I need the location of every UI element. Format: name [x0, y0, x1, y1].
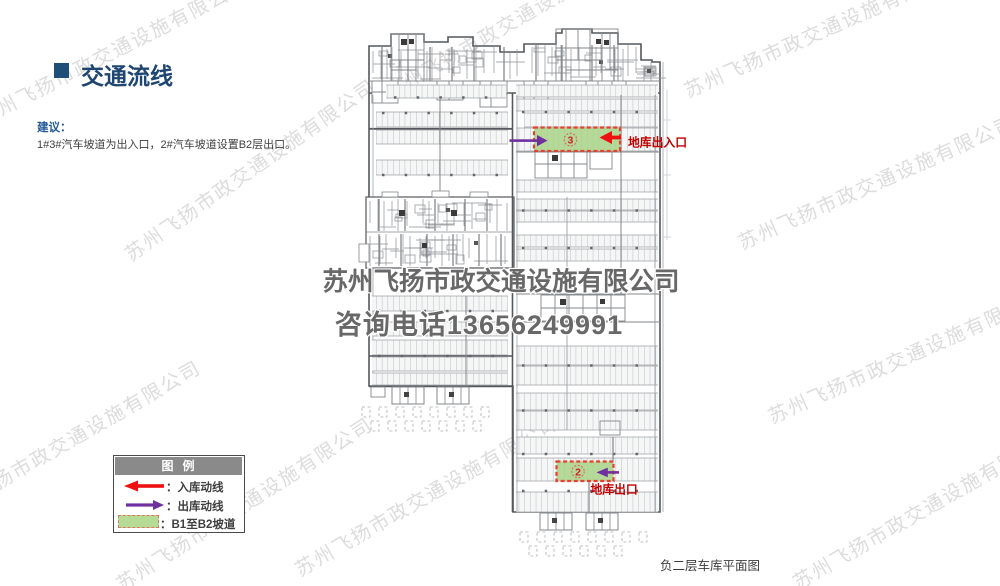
svg-text:2: 2	[575, 466, 581, 478]
svg-text:3: 3	[567, 135, 573, 147]
svg-text:苏州飞扬市政交通设施有限公司: 苏州飞扬市政交通设施有限公司	[765, 286, 1000, 429]
svg-text:地库出入口: 地库出入口	[628, 136, 687, 150]
svg-text:苏州飞扬市政交通设施有限公司: 苏州飞扬市政交通设施有限公司	[322, 267, 679, 296]
svg-text:咨询电话13656249991: 咨询电话13656249991	[335, 310, 623, 340]
svg-text:地库出口: 地库出口	[591, 483, 638, 497]
svg-text:苏州飞扬市政交通设施有限公司: 苏州飞扬市政交通设施有限公司	[790, 425, 1000, 586]
svg-text:负二层车库平面图: 负二层车库平面图	[660, 558, 760, 573]
svg-text:苏州飞扬市政交通设施有限公司: 苏州飞扬市政交通设施有限公司	[121, 75, 380, 266]
svg-text:苏州飞扬市政交通设施有限公司: 苏州飞扬市政交通设施有限公司	[735, 112, 1000, 255]
svg-text:苏州飞扬市政交通设施有限公司: 苏州飞扬市政交通设施有限公司	[681, 0, 965, 103]
